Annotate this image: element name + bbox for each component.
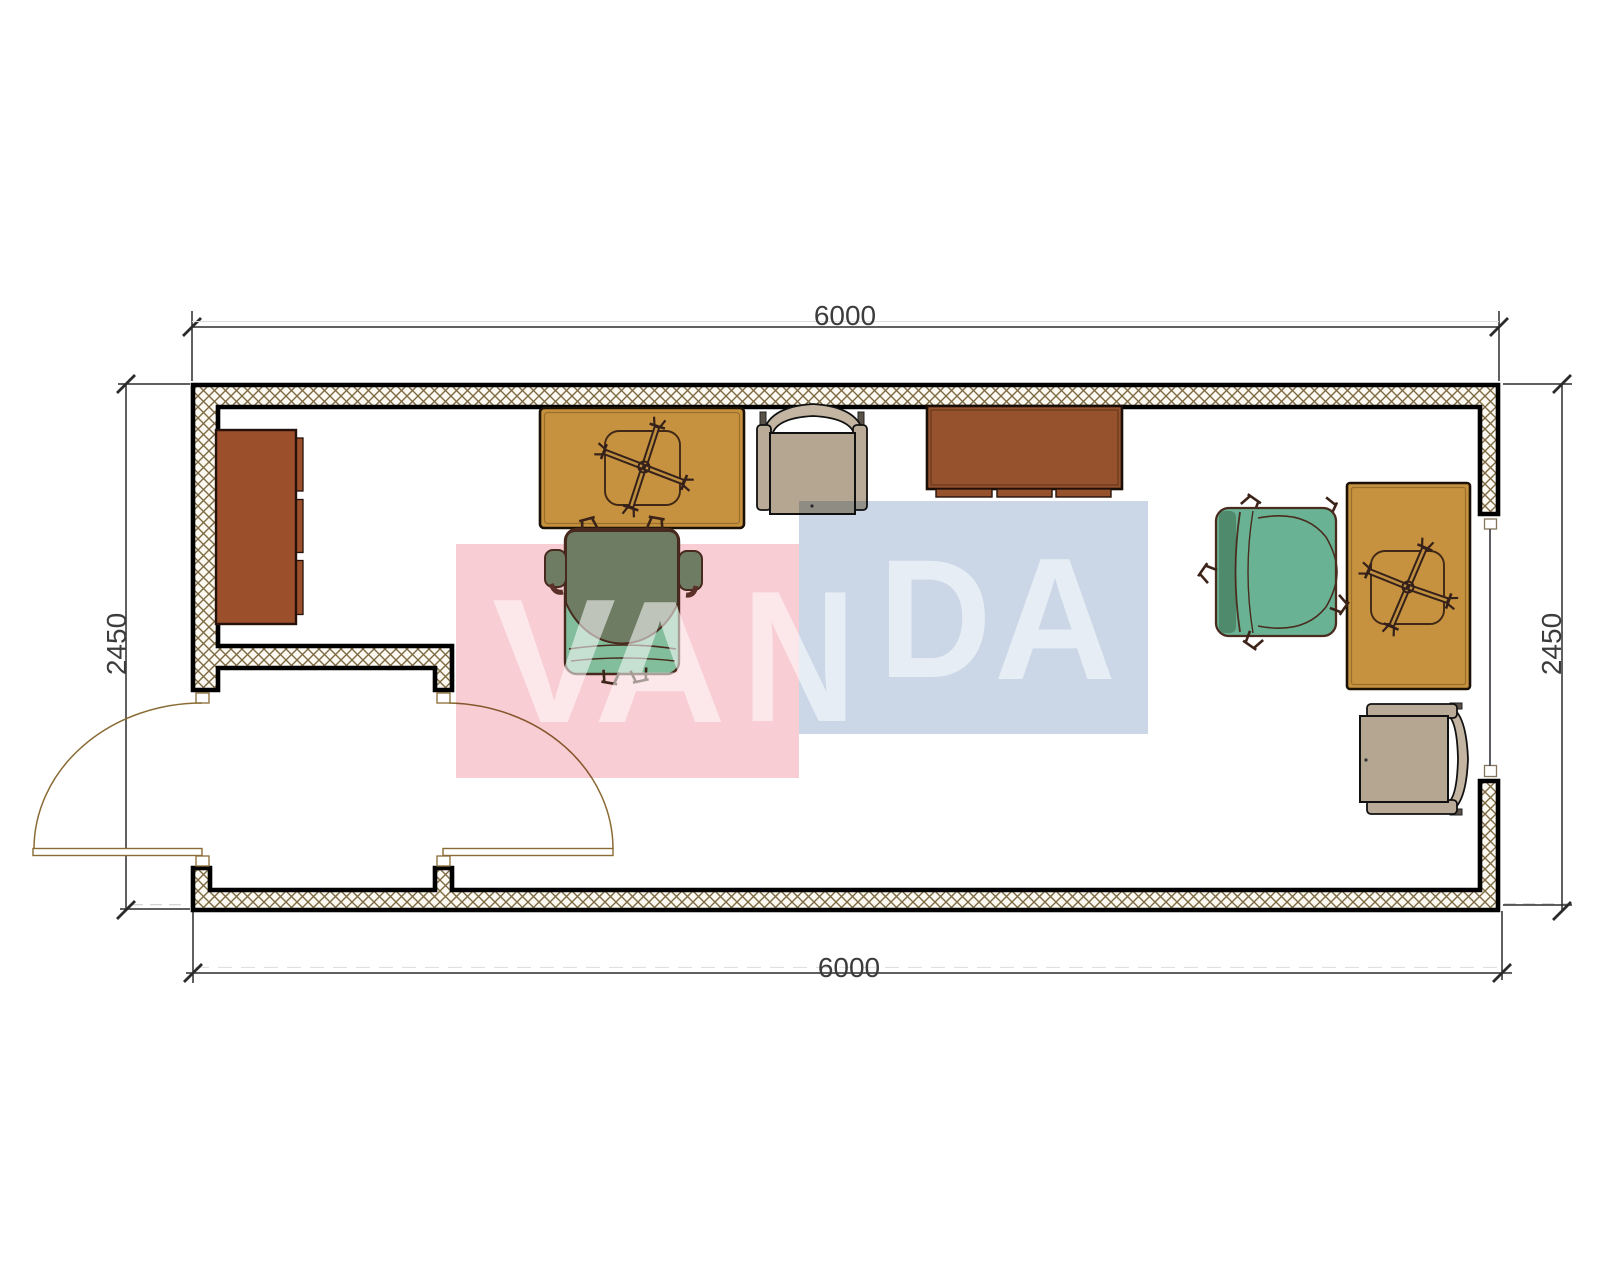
svg-text:D: D — [879, 524, 992, 713]
svg-text:A: A — [594, 564, 726, 759]
svg-text:A: A — [994, 521, 1116, 716]
svg-text:N: N — [742, 552, 856, 761]
svg-text:6000: 6000 — [814, 300, 876, 331]
svg-text:6000: 6000 — [818, 952, 880, 983]
svg-text:2450: 2450 — [101, 613, 132, 675]
svg-text:2450: 2450 — [1536, 613, 1567, 675]
